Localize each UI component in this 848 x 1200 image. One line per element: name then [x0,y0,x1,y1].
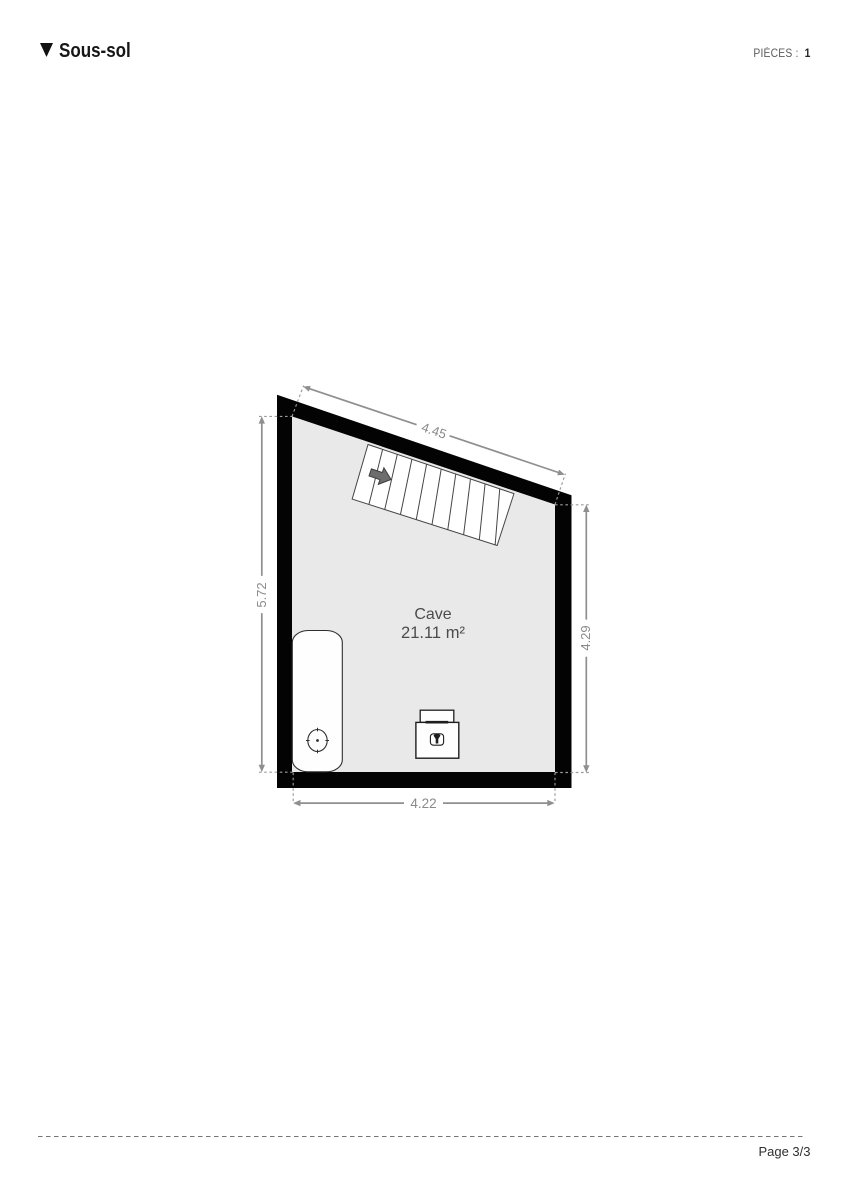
svg-text:4.29: 4.29 [578,625,593,650]
svg-text:21.11 m²: 21.11 m² [401,624,465,642]
svg-text:Cave: Cave [414,606,451,623]
svg-text:4.22: 4.22 [410,796,436,811]
svg-text:5.72: 5.72 [254,582,269,607]
svg-text:4.45: 4.45 [420,419,449,441]
